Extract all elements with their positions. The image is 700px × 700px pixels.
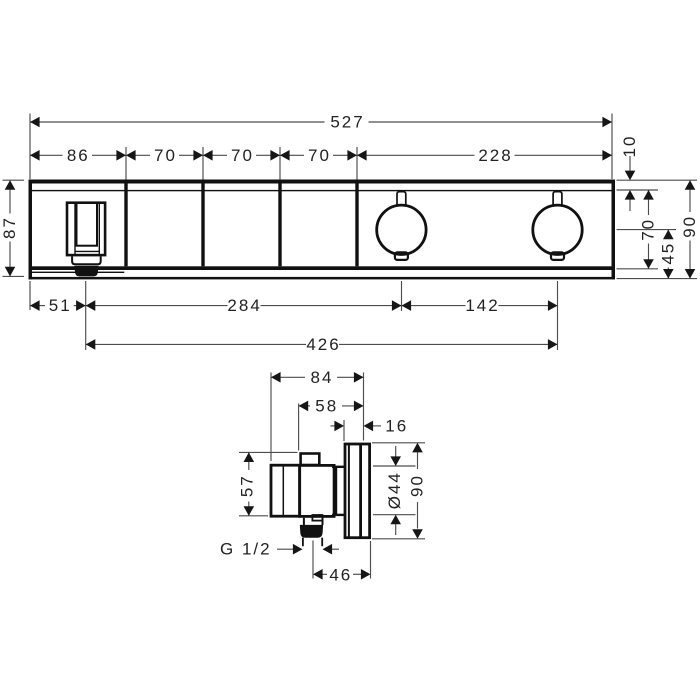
svg-text:284: 284 (227, 296, 261, 315)
svg-text:87: 87 (0, 216, 19, 239)
svg-text:10: 10 (620, 135, 639, 158)
svg-text:46: 46 (329, 566, 352, 585)
svg-text:86: 86 (67, 146, 90, 165)
svg-text:90: 90 (408, 474, 427, 497)
svg-text:142: 142 (465, 296, 499, 315)
svg-text:426: 426 (306, 335, 340, 354)
svg-text:84: 84 (311, 368, 334, 387)
svg-text:527: 527 (330, 113, 364, 132)
svg-text:51: 51 (49, 296, 72, 315)
svg-text:58: 58 (315, 396, 338, 415)
svg-text:70: 70 (154, 146, 177, 165)
svg-text:45: 45 (658, 242, 677, 265)
svg-text:57: 57 (237, 474, 256, 497)
svg-text:70: 70 (231, 146, 254, 165)
svg-text:16: 16 (385, 416, 408, 435)
svg-text:G 1/2: G 1/2 (220, 540, 272, 559)
svg-text:70: 70 (639, 218, 658, 241)
svg-text:70: 70 (308, 146, 331, 165)
svg-text:Ø44: Ø44 (385, 471, 404, 509)
svg-text:228: 228 (478, 146, 512, 165)
svg-text:90: 90 (680, 215, 699, 238)
